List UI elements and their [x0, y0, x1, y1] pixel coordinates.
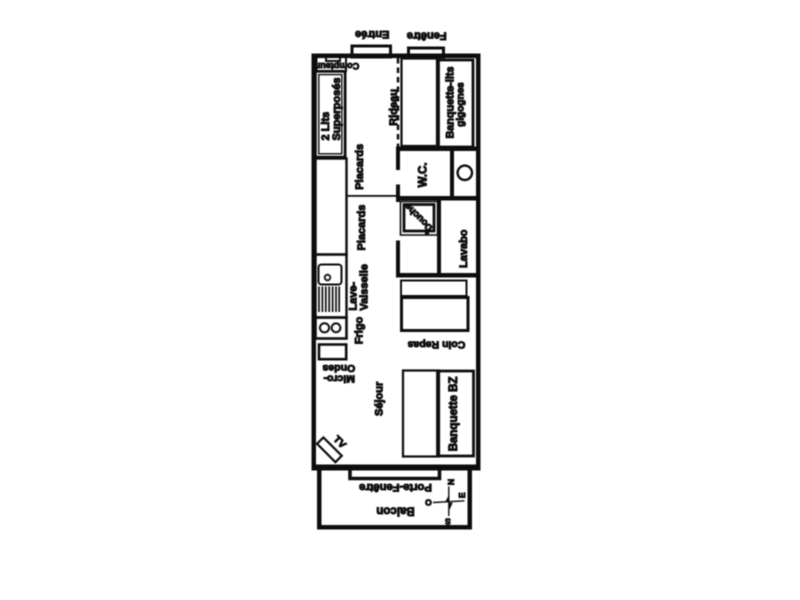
- svg-text:Placards: Placards: [354, 144, 366, 190]
- svg-text:W.C.: W.C.: [417, 162, 429, 187]
- svg-text:Banquette-lits: Banquette-lits: [444, 67, 456, 139]
- svg-text:Lavabo: Lavabo: [458, 229, 470, 268]
- svg-text:2 Lits: 2 Lits: [320, 112, 332, 141]
- svg-text:Balcon: Balcon: [376, 505, 414, 517]
- svg-text:S: S: [445, 517, 451, 527]
- svg-text:Vaisselle: Vaisselle: [359, 264, 371, 311]
- svg-text:Ondes: Ondes: [322, 362, 355, 374]
- svg-text:N: N: [446, 479, 456, 485]
- svg-text:Coin Repas: Coin Repas: [407, 339, 465, 351]
- svg-text:E: E: [457, 492, 467, 498]
- svg-text:Fenêtre: Fenêtre: [407, 29, 447, 41]
- svg-text:Compteur: Compteur: [316, 61, 359, 71]
- svg-text:Lave-: Lave-: [347, 282, 359, 311]
- svg-text:Frigo: Frigo: [354, 317, 366, 345]
- svg-text:Banquette BZ: Banquette BZ: [448, 377, 460, 452]
- svg-text:Entrée: Entrée: [355, 28, 389, 40]
- svg-text:Rideau: Rideau: [388, 89, 400, 126]
- svg-text:Placards: Placards: [356, 205, 368, 251]
- svg-text:Micro-: Micro-: [323, 373, 355, 385]
- svg-text:Séjour: Séjour: [374, 381, 386, 416]
- svg-text:Porte-Fenêtre: Porte-Fenêtre: [359, 481, 432, 493]
- svg-text:Superposés: Superposés: [331, 78, 343, 141]
- svg-text:gigognes: gigognes: [456, 82, 467, 127]
- svg-text:O: O: [425, 498, 432, 508]
